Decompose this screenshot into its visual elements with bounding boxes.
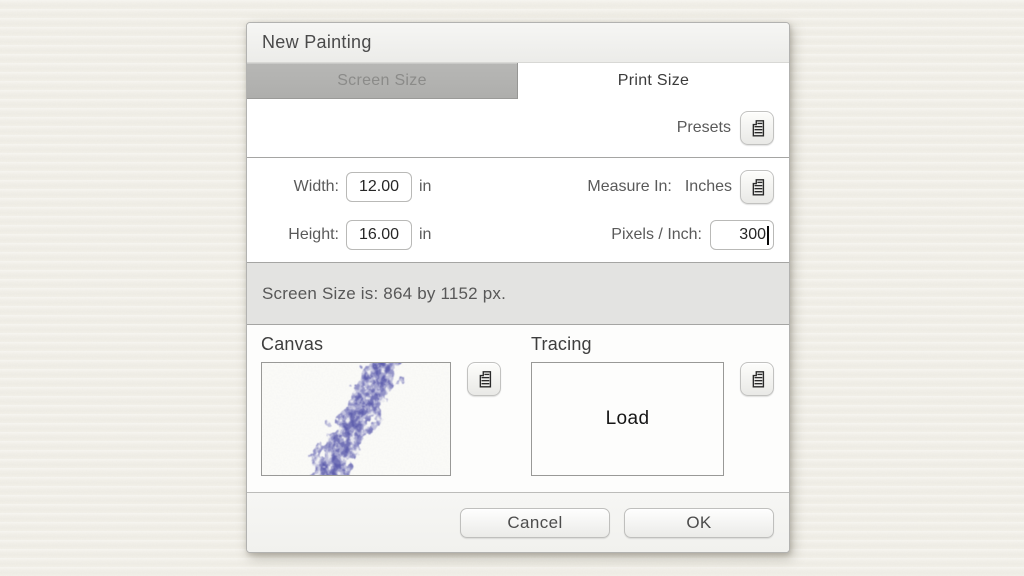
presets-label: Presets — [677, 119, 731, 137]
size-fields-section: Width: in Measure In:Inches — [247, 158, 789, 263]
width-unit-label: in — [419, 178, 431, 196]
screen-size-status-text: Screen Size is: 864 by 1152 px. — [262, 284, 506, 304]
canvas-menu-button[interactable] — [467, 362, 501, 396]
measure-in-value: Inches — [685, 178, 732, 196]
pixels-per-inch-value: 300 — [739, 226, 766, 244]
field-row-1: Width: in Measure In:Inches — [275, 170, 774, 204]
canvas-texture-preview — [262, 363, 450, 475]
canvas-preview[interactable] — [261, 362, 451, 476]
dialog-title-bar: New Painting — [247, 23, 789, 63]
height-input[interactable] — [346, 220, 412, 250]
list-menu-icon — [746, 368, 768, 390]
canvas-tracing-section: Canvas — [247, 325, 789, 492]
presets-menu-button[interactable] — [740, 111, 774, 145]
tab-screen-size[interactable]: Screen Size — [247, 63, 518, 99]
tracing-menu-button[interactable] — [740, 362, 774, 396]
cancel-button[interactable]: Cancel — [460, 508, 610, 538]
dialog-footer: Cancel OK — [247, 492, 789, 552]
list-menu-icon — [746, 176, 768, 198]
width-label: Width: — [275, 178, 339, 196]
pixels-per-inch-label: Pixels / Inch: — [611, 226, 702, 244]
size-tab-bar: Screen Size Print Size — [247, 63, 789, 99]
measure-in-label: Measure In: — [587, 178, 671, 196]
canvas-section-label: Canvas — [261, 334, 501, 355]
height-label: Height: — [275, 226, 339, 244]
tab-print-size[interactable]: Print Size — [518, 63, 789, 99]
tracing-load-area[interactable]: Load — [531, 362, 724, 476]
canvas-column: Canvas — [261, 334, 501, 492]
tab-screen-size-label: Screen Size — [337, 72, 427, 90]
dialog-title: New Painting — [262, 32, 372, 53]
tracing-section-label: Tracing — [531, 334, 774, 355]
tab-print-size-label: Print Size — [618, 72, 689, 90]
tracing-column: Tracing Load — [531, 334, 774, 492]
list-menu-icon — [473, 368, 495, 390]
text-caret — [767, 226, 769, 245]
tracing-load-label: Load — [606, 408, 650, 430]
new-painting-dialog: New Painting Screen Size Print Size Pres… — [246, 22, 790, 553]
height-unit-label: in — [419, 226, 431, 244]
ok-button[interactable]: OK — [624, 508, 774, 538]
measure-in-menu-button[interactable] — [740, 170, 774, 204]
width-input[interactable] — [346, 172, 412, 202]
list-menu-icon — [746, 117, 768, 139]
pixels-per-inch-input[interactable]: 300 — [710, 220, 774, 250]
presets-row: Presets — [247, 99, 789, 158]
screen-size-status-bar: Screen Size is: 864 by 1152 px. — [247, 263, 789, 325]
field-row-2: Height: in Pixels / Inch: 300 — [275, 220, 774, 250]
